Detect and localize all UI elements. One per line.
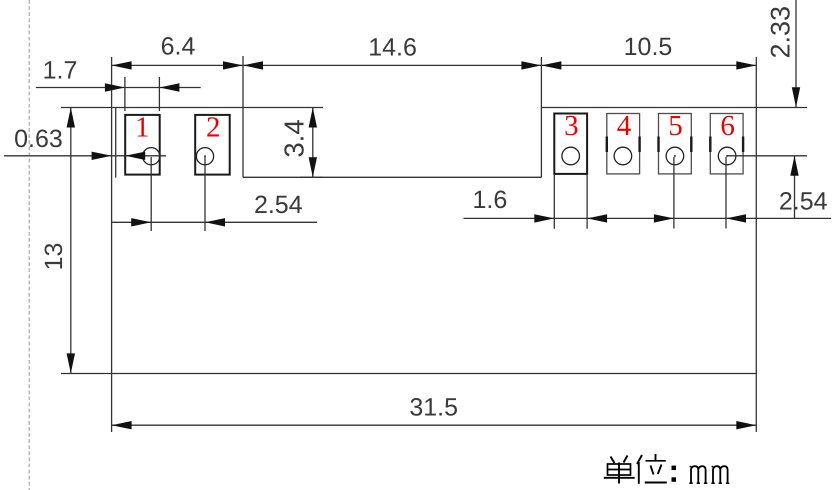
svg-text:4: 4 [617, 110, 632, 142]
svg-text:5: 5 [668, 110, 683, 142]
svg-text:1.6: 1.6 [473, 186, 508, 214]
svg-text:2.54: 2.54 [254, 191, 303, 219]
svg-text:1: 1 [135, 112, 150, 144]
svg-text:2.33: 2.33 [766, 6, 796, 59]
svg-text:14.6: 14.6 [368, 34, 417, 62]
svg-text:3: 3 [564, 110, 579, 142]
svg-text:6.4: 6.4 [161, 33, 196, 61]
svg-text:2: 2 [206, 112, 221, 144]
svg-text:0.63: 0.63 [14, 125, 63, 153]
svg-text:2.54: 2.54 [779, 188, 828, 216]
svg-text:1.7: 1.7 [43, 57, 78, 85]
svg-text:10.5: 10.5 [624, 33, 673, 61]
svg-text:13: 13 [40, 243, 68, 271]
svg-text:31.5: 31.5 [409, 394, 458, 422]
svg-text:6: 6 [720, 110, 735, 142]
svg-text:3.4: 3.4 [279, 119, 310, 157]
